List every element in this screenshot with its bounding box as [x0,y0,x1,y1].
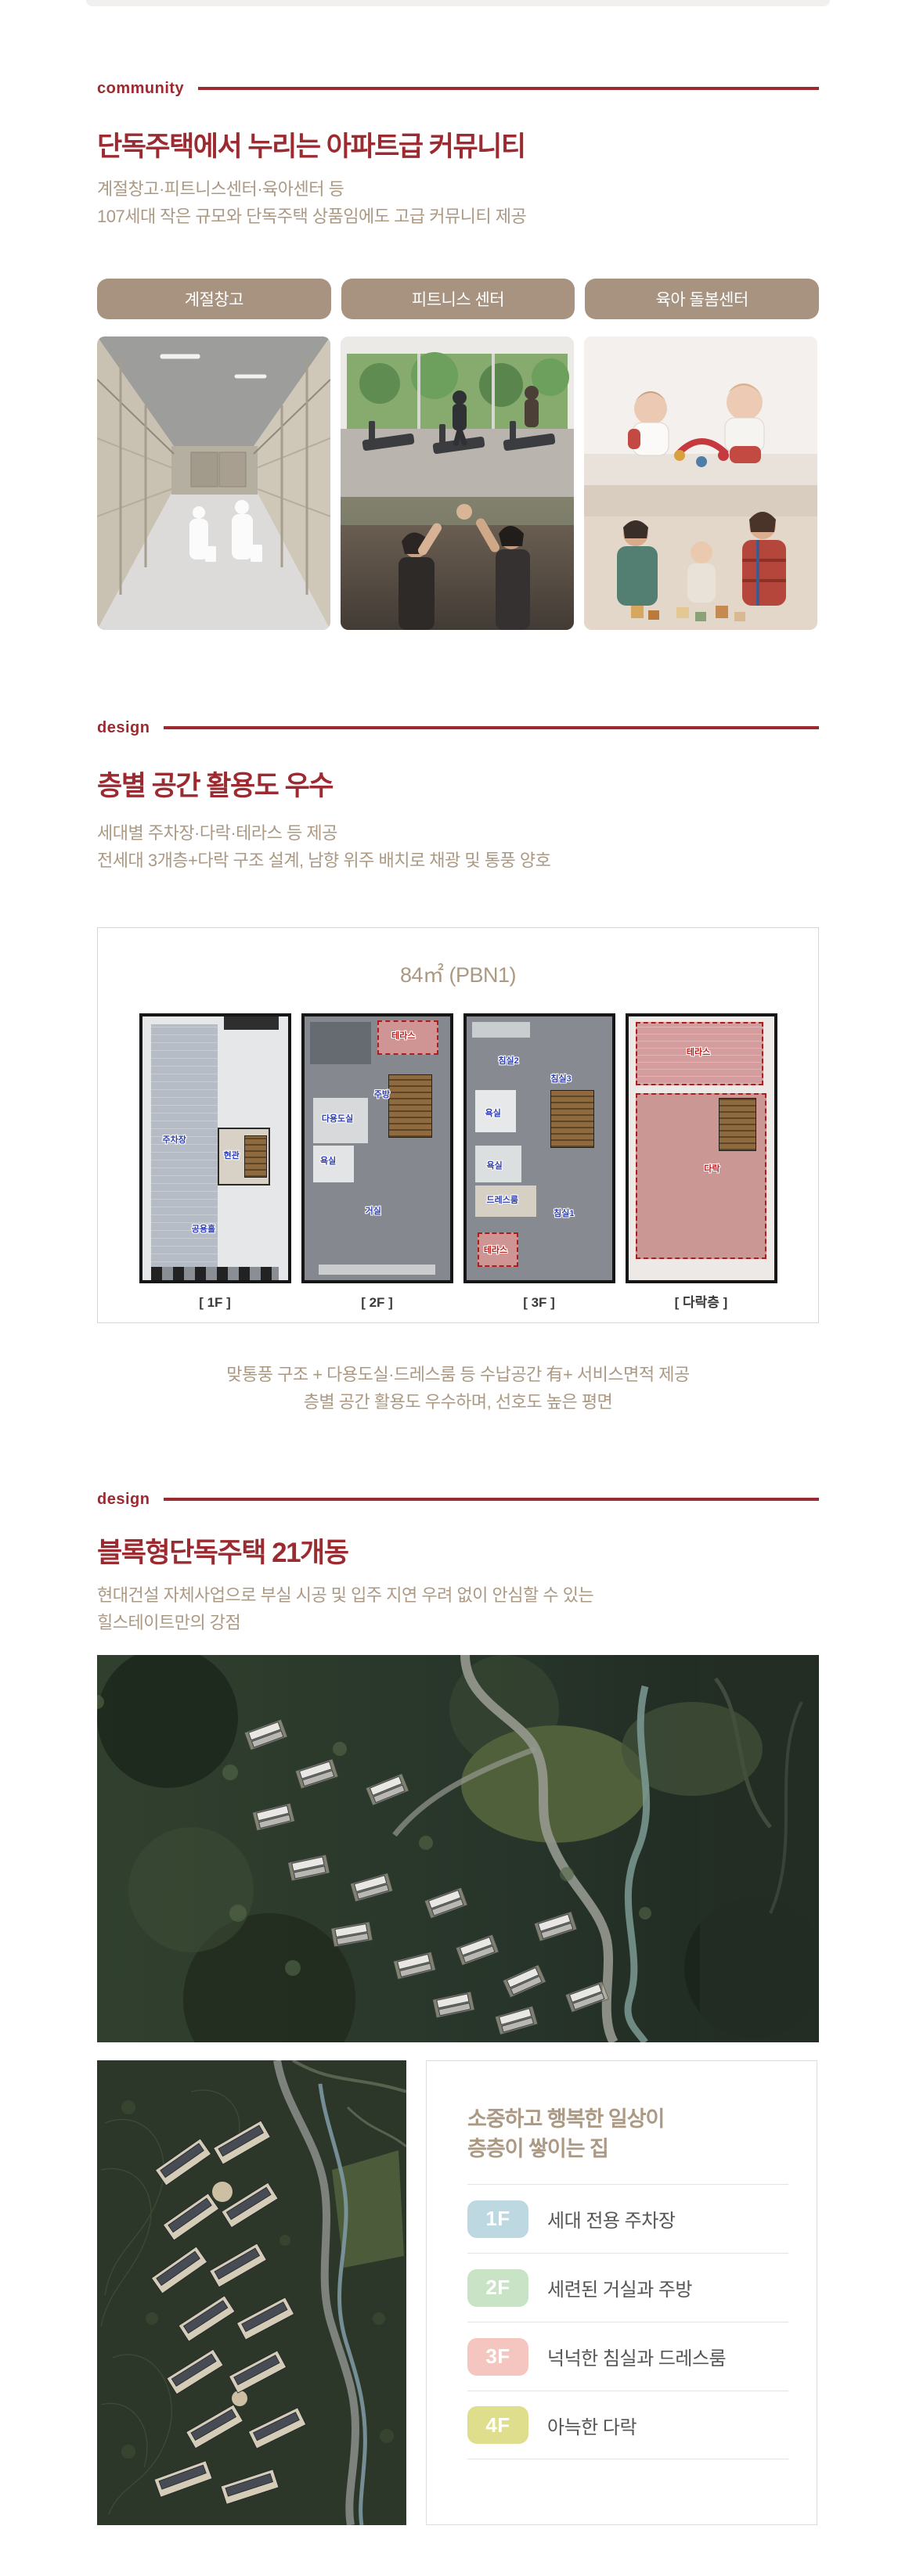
room-label: 드레스룸 [487,1196,518,1205]
community-header: community [97,80,819,97]
room-label: 침실3 [550,1074,571,1084]
floorplan-attic-image: 테라스 다락 [626,1013,777,1283]
floor-badge-4f: 4F [467,2406,528,2444]
community-tabs: 계절창고 피트니스 센터 육아 돌봄센터 [97,279,819,319]
previous-section-remnant [86,0,830,6]
bottom-row: 소중하고 행복한 일상이 층층이 쌓이는 집 1F 세대 전용 주차장 2F 세… [97,2060,819,2525]
room-label: 다용도실 [322,1114,353,1124]
room-label: 거실 [366,1207,381,1216]
section-community: community 단독주택에서 누리는 아파트급 커뮤니티 계절창고·피트니스… [97,80,819,630]
design2-subtitle-line1: 현대건설 자체사업으로 부실 시공 및 입주 지연 우려 없이 안심할 수 있는 [97,1581,819,1609]
panel-heading-line2: 층층이 쌓이는 집 [467,2134,788,2164]
section-divider-line [198,87,819,90]
floor-label-1f: 세대 전용 주차장 [547,2205,675,2232]
room-label: 주차장 [163,1135,186,1145]
community-subtitle-line1: 계절창고·피트니스센터·육아센터 등 [97,175,819,203]
section-design-floorplan: design 층별 공간 활용도 우수 세대별 주차장·다락·테라스 등 제공 … [97,719,819,1416]
floorplan-row: 주차장 현관 공용홀 [ 1F ] 테라스 [98,1013,818,1311]
design1-subtitle-line2: 전세대 3개층+다락 구조 설계, 남향 위주 배치로 채광 및 통풍 양호 [97,847,819,874]
floorplan-footnote-line1: 맞통풍 구조 + 다용도실·드레스룸 등 수납공간 有+ 서비스면적 제공 [97,1361,819,1388]
floorplan-2f: 테라스 주방 다용도실 욕실 거실 [ 2F ] [301,1013,453,1311]
floor-item-3f: 3F 넉넉한 침실과 드레스룸 [467,2322,788,2391]
panel-heading-line1: 소중하고 행복한 일상이 [467,2104,788,2134]
tab-childcare-center[interactable]: 육아 돌봄센터 [585,279,819,319]
floor-item-4f: 4F 아늑한 다락 [467,2391,788,2459]
section-label-community: community [97,80,184,97]
floor-badge-3f: 3F [467,2338,528,2376]
aerial-complex-photo [97,1655,819,2042]
room-label: 공용홀 [192,1225,215,1234]
floor-badge-2f: 2F [467,2269,528,2307]
tab-fitness-center[interactable]: 피트니스 센터 [341,279,575,319]
floor-item-2f: 2F 세련된 거실과 주방 [467,2253,788,2322]
seasonal-storage-photo [97,336,330,630]
room-label: 침실2 [498,1056,518,1066]
section-label-design2: design [97,1491,150,1508]
floorplan-attic-caption: [ 다락층 ] [626,1294,777,1311]
floorplan-2f-caption: [ 2F ] [301,1294,453,1311]
floorplan-3f-caption: [ 3F ] [463,1294,615,1311]
floorplan-1f-caption: [ 1F ] [139,1294,291,1311]
floor-label-4f: 아늑한 다락 [547,2412,637,2439]
floorplan-1f-image: 주차장 현관 공용홀 [139,1013,291,1283]
promo-page: community 단독주택에서 누리는 아파트급 커뮤니티 계절창고·피트니스… [0,0,916,2576]
design2-subtitle: 현대건설 자체사업으로 부실 시공 및 입주 지연 우려 없이 안심할 수 있는… [97,1581,819,1636]
room-label: 테라스 [484,1246,507,1255]
floor-label-3f: 넉넉한 침실과 드레스룸 [547,2343,726,2370]
design1-subtitle-line1: 세대별 주차장·다락·테라스 등 제공 [97,819,819,847]
design1-header: design [97,719,819,736]
floorplan-unit-title: 84㎡ (PBN1) [98,962,818,988]
floorplan-2f-image: 테라스 주방 다용도실 욕실 거실 [301,1013,453,1283]
floorplan-attic: 테라스 다락 [ 다락층 ] [626,1013,777,1311]
floor-item-1f: 1F 세대 전용 주차장 [467,2184,788,2253]
section-design-block: design 블록형단독주택 21개동 현대건설 자체사업으로 부실 시공 및 … [97,1491,819,2525]
section-divider-line [164,1498,819,1501]
section-divider-line [164,726,819,729]
room-label: 욕실 [485,1109,501,1118]
childcare-center-photo [584,336,817,630]
tab-seasonal-storage[interactable]: 계절창고 [97,279,331,319]
room-label: 현관 [224,1151,240,1160]
siteplan-photo [97,2060,406,2525]
community-title: 단독주택에서 누리는 아파트급 커뮤니티 [97,130,819,164]
floor-info-panel: 소중하고 행복한 일상이 층층이 쌓이는 집 1F 세대 전용 주차장 2F 세… [426,2060,817,2525]
room-label: 테라스 [391,1031,415,1041]
community-subtitle: 계절창고·피트니스센터·육아센터 등 107세대 작은 규모와 단독주택 상품임… [97,175,819,230]
room-label: 주방 [374,1090,390,1099]
room-label: 침실1 [554,1209,574,1218]
design2-header: design [97,1491,819,1508]
panel-heading: 소중하고 행복한 일상이 층층이 쌓이는 집 [467,2104,788,2164]
design1-subtitle: 세대별 주차장·다락·테라스 등 제공 전세대 3개층+다락 구조 설계, 남향… [97,819,819,874]
floorplan-box: 84㎡ (PBN1) 주차장 현관 공용홀 [ 1F ] [97,927,819,1323]
room-label: 욕실 [487,1161,503,1171]
floorplan-footnote: 맞통풍 구조 + 다용도실·드레스룸 등 수납공간 有+ 서비스면적 제공 층별… [97,1361,819,1416]
floorplan-footnote-line2: 층별 공간 활용도 우수하며, 선호도 높은 평면 [97,1388,819,1416]
design1-title: 층별 공간 활용도 우수 [97,769,819,804]
fitness-center-photo [341,336,574,630]
room-label: 다락 [704,1164,719,1174]
floor-badge-1f: 1F [467,2200,528,2238]
community-subtitle-line2: 107세대 작은 규모와 단독주택 상품임에도 고급 커뮤니티 제공 [97,203,819,230]
community-photos [97,336,819,630]
floor-label-2f: 세련된 거실과 주방 [547,2274,692,2301]
room-label: 욕실 [320,1157,336,1166]
room-label: 테라스 [687,1048,710,1057]
design2-title: 블록형단독주택 21개동 [97,1536,819,1570]
floorplan-3f: 침실2 침실3 욕실 욕실 드레스룸 침실1 테라스 [ 3F ] [463,1013,615,1311]
section-label-design1: design [97,719,150,736]
floor-list: 1F 세대 전용 주차장 2F 세련된 거실과 주방 3F 넉넉한 침실과 드레… [467,2184,788,2459]
design2-subtitle-line2: 힐스테이트만의 강점 [97,1609,819,1636]
floorplan-3f-image: 침실2 침실3 욕실 욕실 드레스룸 침실1 테라스 [463,1013,615,1283]
floorplan-1f: 주차장 현관 공용홀 [ 1F ] [139,1013,291,1311]
